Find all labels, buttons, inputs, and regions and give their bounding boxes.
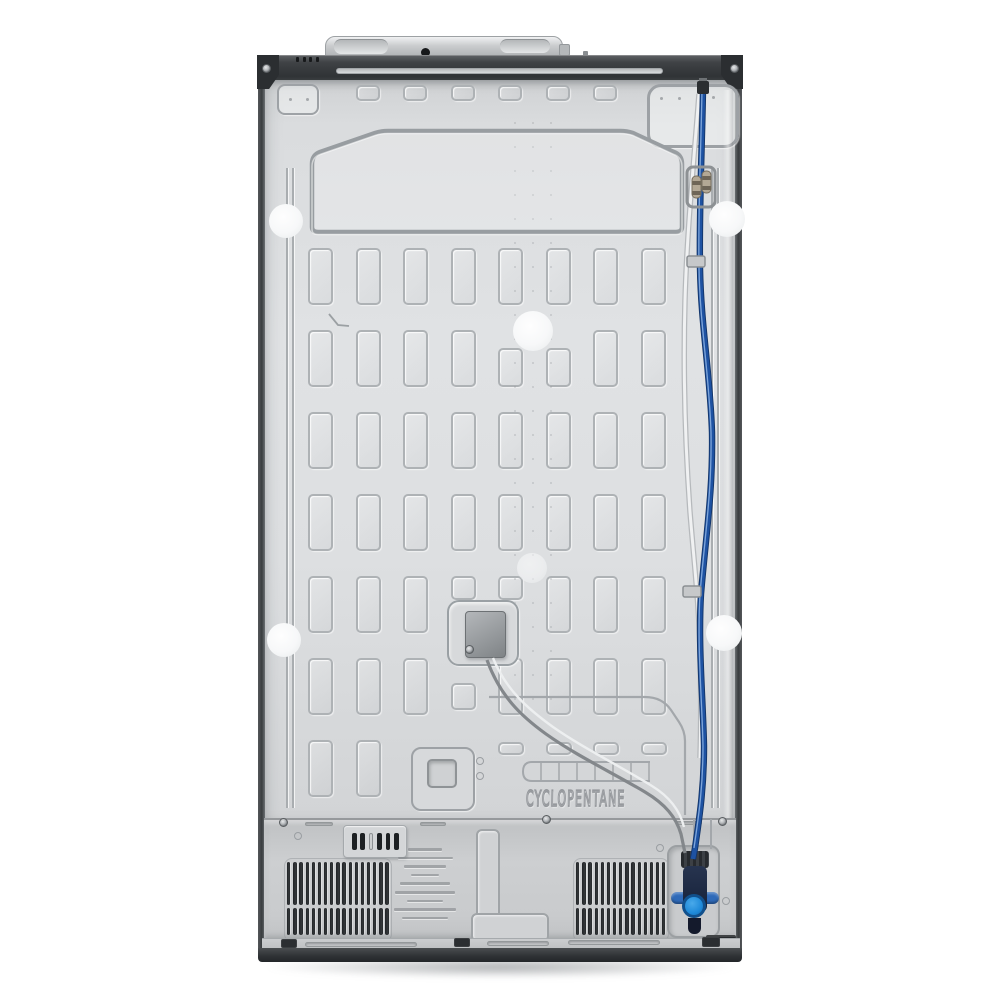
trapezoid-emboss [312, 131, 682, 235]
foam-pad [706, 615, 742, 651]
water-line-blue [693, 90, 712, 859]
foam-pad [267, 623, 301, 657]
foam-pad [269, 204, 303, 238]
lineart-overlay [0, 0, 1000, 1000]
foam-pad [513, 311, 553, 351]
tube-clip [683, 586, 701, 597]
foam-pad [709, 201, 745, 237]
product-photo-stage: CYCLOPENTANE [0, 0, 1000, 1000]
hook-mark [329, 314, 349, 326]
power-cable [487, 660, 685, 853]
drain-tube [493, 658, 684, 827]
foam-pad [517, 553, 547, 583]
tube-clip [687, 256, 705, 267]
